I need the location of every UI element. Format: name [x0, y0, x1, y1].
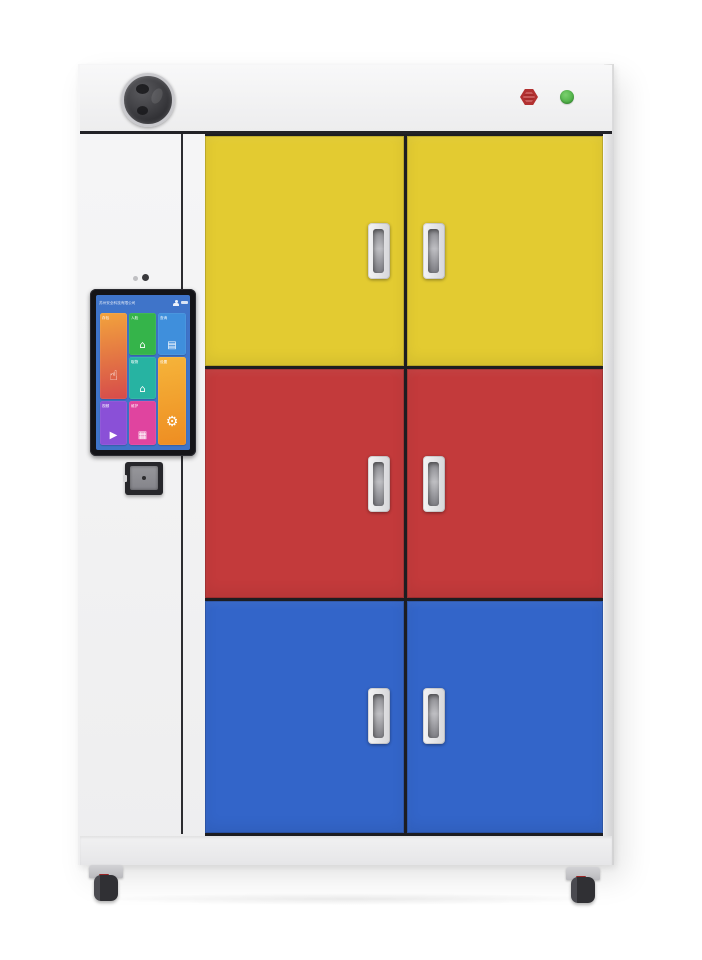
camera-dome-icon [121, 73, 175, 127]
door-handle[interactable] [368, 223, 390, 279]
screen-tile-face[interactable]: 人脸 ⌂ [129, 313, 156, 355]
screen-tile-query[interactable]: 查询 ▤ [158, 313, 186, 355]
tile-label: 存包 [102, 315, 109, 320]
gear-icon: ⚙ [158, 415, 186, 429]
light-sensor-icon [133, 276, 138, 281]
camera-lens-icon [136, 84, 149, 94]
screen-header: 苏州安全科技有限公司 [96, 295, 190, 310]
locker-door-yellow-left[interactable] [205, 136, 404, 366]
door-grid [205, 134, 603, 836]
scanner-lens-icon [142, 476, 146, 480]
panel-seam [181, 134, 183, 834]
document-icon: ▤ [158, 341, 186, 351]
locker-icon: ⌂ [129, 385, 156, 395]
scanner-tab [123, 475, 127, 482]
company-name: 苏州安全科技有限公司 [99, 300, 135, 305]
tile-label: 取物 [131, 359, 138, 364]
floor-shadow [90, 893, 610, 905]
handle-recess [373, 462, 384, 506]
user-icon [173, 300, 179, 306]
camera-glint [149, 87, 165, 106]
screen-tile-deposit[interactable]: 存包 ☝ [100, 313, 127, 399]
locker-icon: ⌂ [129, 341, 156, 351]
base-plinth [80, 836, 612, 865]
screen-tile-grid: 存包 ☝ 人脸 ⌂ 查询 ▤ 取物 ⌂ 设置 ⚙ [100, 313, 186, 445]
screen-tile-video[interactable]: 视频 ▶ [100, 401, 127, 445]
tile-label: 人脸 [131, 315, 138, 320]
door-handle[interactable] [368, 688, 390, 744]
tile-label: 维护 [131, 403, 138, 408]
handle-recess [428, 694, 439, 738]
locker-door-blue-left[interactable] [205, 601, 404, 833]
tile-label: 查询 [160, 315, 167, 320]
screen-tile-settings[interactable]: 设置 ⚙ [158, 357, 186, 445]
power-indicator-light[interactable] [560, 90, 574, 104]
locker-door-blue-right[interactable] [407, 601, 603, 833]
touch-icon: ☝ [100, 369, 127, 383]
handle-recess [428, 462, 439, 506]
status-text [181, 301, 188, 304]
handle-recess [373, 694, 384, 738]
handle-recess [428, 229, 439, 273]
alarm-icon [523, 92, 535, 102]
product-photo: 苏州安全科技有限公司 存包 ☝ 人脸 ⌂ 查询 ▤ [0, 0, 702, 960]
door-handle[interactable] [368, 456, 390, 512]
tile-label: 设置 [160, 359, 167, 364]
cabinet-side-shade [604, 64, 614, 865]
door-handle[interactable] [423, 456, 445, 512]
card-icon: ▦ [129, 431, 156, 441]
screen-tile-pickup[interactable]: 取物 ⌂ [129, 357, 156, 399]
camera-lens-icon [137, 106, 148, 115]
touchscreen[interactable]: 苏州安全科技有限公司 存包 ☝ 人脸 ⌂ 查询 ▤ [90, 289, 196, 456]
locker-door-red-left[interactable] [205, 369, 404, 598]
screen-tile-maintain[interactable]: 维护 ▦ [129, 401, 156, 445]
handle-recess [373, 229, 384, 273]
tile-label: 视频 [102, 403, 109, 408]
video-icon: ▶ [100, 431, 127, 441]
door-handle[interactable] [423, 223, 445, 279]
locker-door-yellow-right[interactable] [407, 136, 603, 366]
locker-door-red-right[interactable] [407, 369, 603, 598]
front-camera-icon [142, 274, 149, 281]
door-handle[interactable] [423, 688, 445, 744]
screen-display: 苏州安全科技有限公司 存包 ☝ 人脸 ⌂ 查询 ▤ [96, 295, 190, 450]
qr-scanner [125, 462, 163, 495]
